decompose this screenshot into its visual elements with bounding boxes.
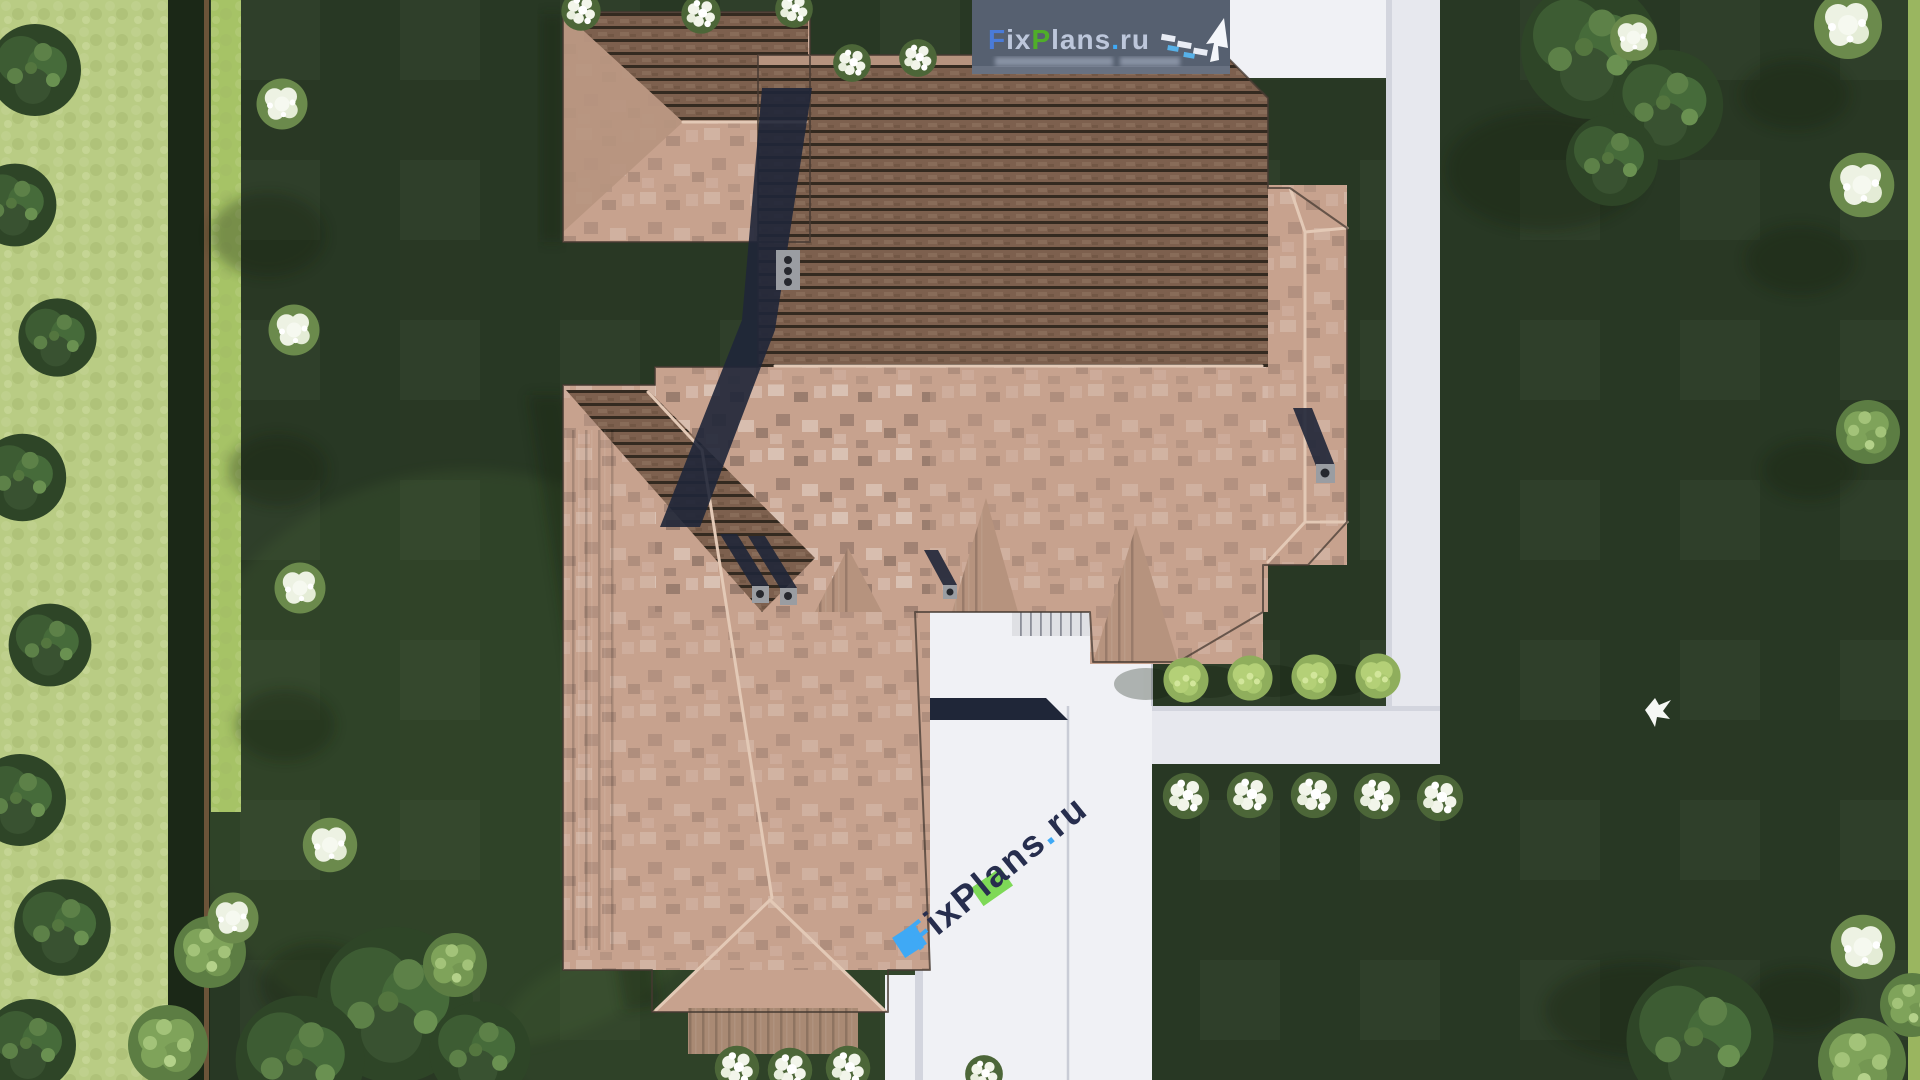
flowering-tree [1830, 153, 1895, 218]
flowering-bush [833, 44, 871, 82]
chimney-flue [784, 278, 792, 286]
tree [9, 604, 92, 687]
tree-shadow [228, 434, 328, 506]
flowering-bush [1417, 775, 1463, 821]
path-right-edge-shade [1386, 0, 1392, 714]
path-right-vertical [1386, 0, 1440, 714]
driveway-wall-shadow [926, 698, 1068, 720]
logo-letters-ru: ru [1120, 24, 1150, 55]
tree-shadow [1740, 60, 1850, 130]
chimney-flue [784, 267, 792, 275]
bush [1291, 654, 1336, 699]
logo-letters-ix: ix [1006, 24, 1031, 55]
tree [423, 933, 487, 997]
chimney-flue [784, 256, 792, 264]
chimney-flue [947, 589, 954, 596]
bush [1163, 657, 1208, 702]
chimney-flue [756, 590, 764, 598]
tree-shadow [210, 193, 326, 277]
blurred-text-bar [1120, 57, 1180, 66]
path-walkway [1152, 706, 1440, 764]
logo-letters-lans: lans [1051, 24, 1111, 55]
chimney-flue [784, 592, 792, 600]
roof-main-north-slope [758, 55, 1268, 367]
path-walkway-edge [1152, 706, 1440, 711]
scene-svg: FixPlans.ru FixPlans.ru [0, 0, 1920, 1080]
chimney-flue [1321, 469, 1330, 478]
flowering-tree [275, 563, 326, 614]
flowering-bush [1163, 773, 1209, 819]
tree [14, 879, 111, 976]
flowering-tree [269, 305, 320, 356]
watermark-banner: FixPlans.ru [972, 0, 1230, 74]
flowering-bush [1354, 773, 1400, 819]
tree [1566, 114, 1658, 206]
flowering-tree [303, 818, 357, 872]
flowering-bush [1291, 772, 1337, 818]
flowering-bush [899, 39, 937, 77]
roof-texture [563, 385, 930, 970]
flowering-tree [257, 79, 308, 130]
flowering-bush [1227, 772, 1273, 818]
house-ground-shadow [540, 14, 564, 242]
tree [1836, 400, 1900, 464]
aerial-render: FixPlans.ru FixPlans.ru [0, 0, 1920, 1080]
flowering-tree [208, 893, 259, 944]
porch-gable-texture [688, 1008, 858, 1054]
right-edge-hedge [1908, 0, 1920, 1080]
flowering-tree [1831, 915, 1896, 980]
tree [18, 298, 96, 376]
tree-shadow [235, 689, 335, 761]
tree-shadow [1745, 225, 1855, 295]
banner-bottom-strip [972, 66, 1230, 74]
bush [1355, 653, 1400, 698]
banner-blurred-subtitle [995, 57, 1180, 66]
blurred-text-bar [995, 57, 1113, 66]
border-hedge-texture [211, 0, 241, 812]
bush [1227, 655, 1272, 700]
logo-dot: . [1111, 24, 1120, 55]
roof-south-wing-west-band [565, 430, 615, 950]
banner-logo-text: FixPlans.ru [988, 24, 1150, 55]
flowering-tree [1610, 14, 1657, 61]
logo-letter-p: P [1031, 24, 1051, 55]
logo-letter-f: F [988, 24, 1006, 55]
driveway-lower-left [885, 975, 917, 1080]
entrance-steps-texture [1012, 610, 1092, 636]
